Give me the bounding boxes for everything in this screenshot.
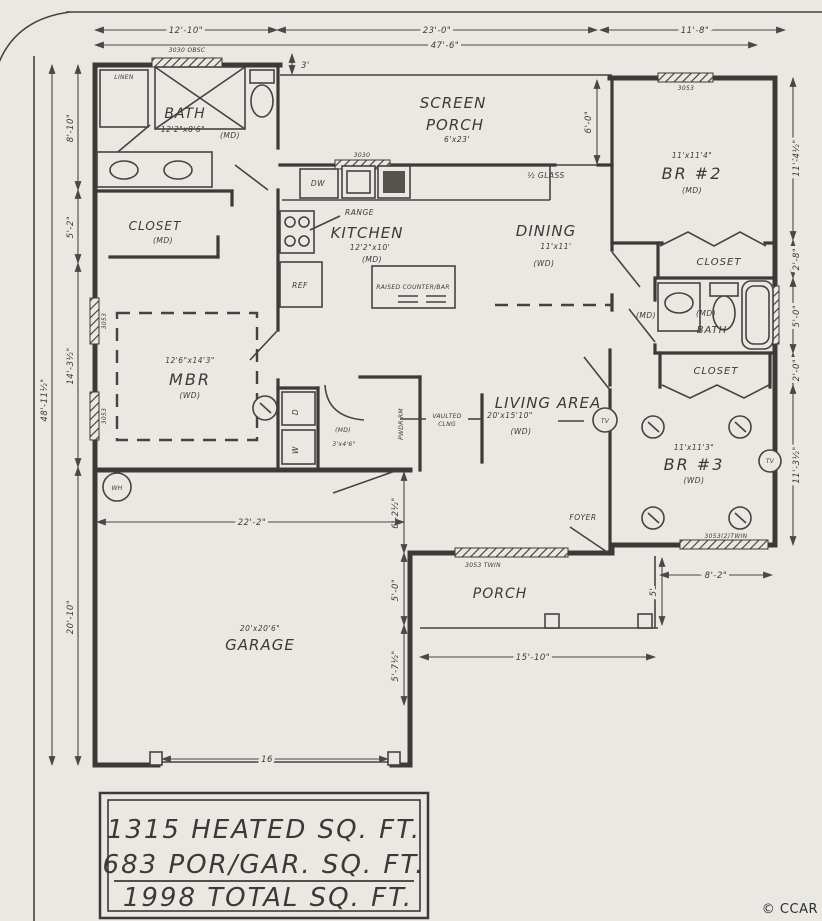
dim: 12'-10" [169,26,203,36]
closet2-label: CLOSET [697,257,742,268]
dryer-label: D [291,409,300,415]
dim: 3' [301,61,310,71]
garage-label: GARAGE [225,636,295,654]
porch-post [545,614,559,628]
bath1-floor: (MD) [220,131,240,140]
br2-label: BR #2 [662,164,723,183]
ccar-credit: © CCAR [762,902,818,917]
dim: 8'-10" [66,114,76,143]
living-size: 20'x15'10" [487,411,533,420]
living-floor: (WD) [510,427,531,436]
dim: 14'-3½" [66,347,76,384]
sink [164,161,192,179]
dim: 6'-0" [584,111,594,134]
dim: 8'-2" [705,571,728,581]
mbr-size: 12'6"x14'3" [165,356,215,365]
dim: 11'-3½" [792,446,802,483]
dining-label: DINING [516,222,576,240]
toilet-tank [250,70,274,83]
ref-label: REF [292,281,308,290]
dryer [282,392,315,425]
total-sqft: 1998 TOTAL SQ. FT. [123,883,413,913]
half-glass-label: ½ GLASS [527,171,565,180]
washer-label: W [291,446,300,454]
window-label: 3053(2)TWIN [705,533,748,540]
powder-room-label: PWDR RM [398,408,405,440]
floor-plan-page: 3030 OBSC 3030 3053 3053 3053 3053 TWIN … [0,0,822,921]
bath1-size: 12'2"x8'6" [161,125,205,134]
range [280,211,314,253]
br3-label: BR #3 [664,455,725,474]
dim: 20'-10" [66,600,76,634]
mbr-window-2 [90,392,99,440]
dim: 23'-0" [423,26,452,36]
dim: 5'-2" [66,216,76,239]
hall-size-label: 3'x4'6" [332,441,355,448]
kitchen-floor: (MD) [362,255,382,264]
br3-size: 11'x11'3" [674,443,714,452]
toilet-bowl [251,85,273,117]
dim: 11'-4½" [792,139,802,176]
screen-porch-label-1: SCREEN [420,94,487,112]
linen-label: LINEN [114,74,134,81]
window-label: 3053 [678,85,694,92]
screen-porch-size: 6'x23' [444,135,470,144]
screen-porch-label-2: PORCH [426,116,484,134]
island-label: RAISED COUNTER/BAR [376,284,449,291]
porch-post [638,614,652,628]
window-label: 3053 [101,408,108,424]
br2-floor: (MD) [682,186,702,195]
dim: 5'-7½" [391,650,401,681]
sink [110,161,138,179]
window-label: 3030 [354,152,370,159]
br3-tv-label: TV [766,458,775,465]
closet3-label: CLOSET [694,366,739,377]
garage-size: 20'x20'6" [240,624,280,633]
dim: 15'-10" [516,653,550,663]
porgar-sqft: 683 POR/GAR. SQ. FT. [103,850,426,880]
vaulted-label-1: VAULTED [432,413,461,420]
br3-floor: (WD) [683,476,704,485]
dim: 2'-0" [792,359,802,382]
porch-label: PORCH [473,586,528,602]
living-label: LIVING AREA [495,394,602,412]
mbr-floor: (WD) [179,391,200,400]
closet1-floor: (MD) [153,236,173,245]
bath2-label: BATH [697,325,728,336]
mbr-label: MBR [169,370,211,389]
mbr-window-1 [90,298,99,344]
dining-size: 11'x11' [540,242,571,251]
vaulted-label-2: CLNG [438,421,456,428]
toilet-tank [710,283,738,296]
heated-sqft: 1315 HEATED SQ. FT. [107,815,421,845]
living-window [455,548,568,557]
dining-floor: (WD) [533,259,554,268]
range-label: RANGE [345,208,374,217]
floor-plan-drawing: 3030 OBSC 3030 3053 3053 3053 3053 TWIN … [0,0,822,921]
square-footage-box: 1315 HEATED SQ. FT. 683 POR/GAR. SQ. FT.… [100,793,428,918]
window-label: 3053 TWIN [465,562,501,569]
water-heater-label: WH [111,485,122,492]
foyer-label: FOYER [569,513,596,522]
bath2-floor: (MD) [696,309,716,318]
window-label: 3053 [101,313,108,329]
living-tv-label: TV [601,418,610,425]
bath-window [152,58,222,67]
dim: 48'-11½" [40,378,50,421]
hall-floor-label: (MD) [335,427,351,434]
kitchen-size: 12'2"x10' [350,243,390,252]
bath1-label: BATH [164,106,205,122]
br2-window [658,73,713,82]
dim: 11'-8" [681,26,710,36]
dim: 2'-8" [792,248,802,271]
sink [665,293,693,313]
dim: 22'-2" [238,518,267,528]
dw-label: DW [311,179,325,188]
br3-window [680,540,768,549]
dim: 16 [261,755,273,765]
dim: 5' [649,588,659,597]
hall-floor: (MD) [636,311,656,320]
br2-size: 11'x11'4" [672,151,712,160]
dim: 47'-6" [431,41,460,51]
dim: 6'-2½" [391,497,401,528]
dim: 5'-0" [391,579,401,602]
dim: 5'-0" [792,305,802,328]
closet1-label: CLOSET [129,219,182,233]
kitchen-label: KITCHEN [331,224,404,242]
window-label: 3030 OBSC [169,47,206,54]
